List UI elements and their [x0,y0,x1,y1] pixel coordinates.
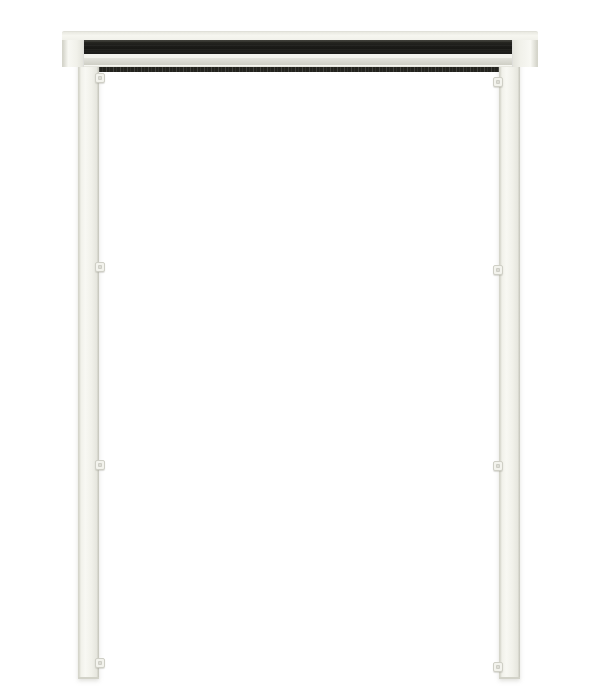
clip-hole [496,464,500,468]
head-rail-cassette [62,31,538,67]
left-side-rail [78,40,99,679]
clip-hole [98,265,102,269]
clip-hole [98,463,102,467]
cassette-channel-stack [84,40,512,67]
cassette-body [62,40,538,67]
mounting-clip [95,73,105,83]
right-side-rail [499,40,520,679]
mounting-clip [493,461,503,471]
clip-hole [98,76,102,80]
mounting-clip [95,460,105,470]
clip-hole [496,80,500,84]
mounting-clip [95,658,105,668]
cassette-groove-band [84,58,512,65]
mounting-clip [493,662,503,672]
clip-hole [98,661,102,665]
mounting-clip [95,262,105,272]
mounting-clip [493,265,503,275]
cassette-bottom-lip [84,65,512,67]
cassette-end-cap-right [512,40,538,67]
mounting-clip [493,77,503,87]
cassette-end-cap-left [62,40,84,67]
product-photo [0,0,600,700]
clip-hole [496,665,500,669]
clip-hole [496,268,500,272]
screen-slot-channel [84,40,512,54]
cassette-top-face [62,31,538,40]
brush-seal [99,67,499,72]
